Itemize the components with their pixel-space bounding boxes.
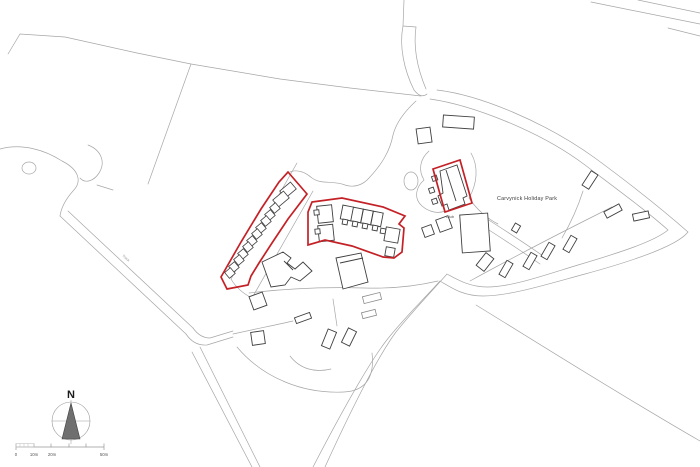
sweep-road-inner: [325, 99, 668, 467]
cottage-tab: [352, 221, 358, 227]
yard-divider: [333, 299, 337, 326]
club-green: [404, 172, 418, 190]
ne-corner-road-a: [591, 2, 700, 24]
caravan: [321, 329, 336, 349]
sweep-road-outer: [313, 90, 688, 467]
outbuilding-sq: [251, 331, 266, 346]
club-label: Club: [446, 214, 455, 219]
caravan: [563, 235, 577, 252]
outbuilding: [361, 309, 376, 318]
park-west-boundary: [290, 101, 416, 186]
north-arrow: N: [52, 389, 90, 444]
track-south-b: [192, 352, 252, 467]
south-loop-a: [237, 347, 372, 392]
hedge-curve: [80, 145, 102, 181]
site-plan-canvas: Carvynick Holiday Park Club Track N 0 10…: [0, 0, 700, 467]
cottage-se: [385, 247, 395, 257]
barn-east: [336, 253, 368, 289]
track-south-a: [200, 347, 260, 467]
club-porch: [428, 187, 434, 193]
ne-corner-road-b: [638, 0, 700, 13]
site-plan-svg: Carvynick Holiday Park Club Track N 0 10…: [0, 0, 700, 467]
caravan: [632, 211, 649, 221]
club-porch: [431, 198, 437, 204]
se-field-boundary: [476, 305, 700, 441]
cottage-tab: [314, 210, 319, 215]
parcel-lines: [0, 0, 700, 467]
north-lane-a: [402, 26, 414, 90]
cottage-tab: [315, 229, 320, 234]
map-labels: Carvynick Holiday Park Club Track: [121, 196, 557, 263]
cottage-east: [384, 227, 400, 243]
caravan: [541, 242, 555, 259]
cottage-units: [314, 205, 400, 257]
caravan: [582, 171, 598, 190]
ne-corner-road-c: [668, 28, 700, 36]
shed: [422, 225, 435, 238]
scale-bar: 0 10m 20m 50m: [15, 444, 109, 458]
west-road-bend-b: [193, 328, 233, 338]
cottage-tab: [342, 219, 348, 225]
scale-label-0: 0: [15, 452, 18, 457]
buildings: [249, 115, 650, 349]
cottage-tab: [380, 228, 386, 234]
west-road-side-a: [60, 216, 186, 334]
light-buildings: [361, 292, 381, 318]
outbuilding: [362, 292, 381, 303]
north-building: [443, 115, 475, 129]
south-loop-b: [290, 356, 331, 370]
outbuilding-thin: [294, 312, 311, 323]
scale-hatch-block: [16, 444, 34, 448]
caravan: [523, 252, 537, 269]
north-label: N: [67, 389, 75, 401]
track-label: Track: [121, 254, 130, 263]
pond: [22, 162, 36, 174]
scale-label-50m: 50m: [100, 452, 109, 457]
workshop-building: [460, 213, 491, 253]
caravan: [604, 204, 622, 218]
caravan: [341, 328, 356, 346]
cottage-tab: [372, 225, 378, 231]
hedge-tick: [97, 185, 113, 190]
caravan-small: [511, 223, 520, 233]
west-road-bend-a: [186, 334, 233, 345]
caravan: [499, 260, 513, 277]
field-divider: [148, 64, 191, 184]
scale-label-20m: 20m: [48, 452, 57, 457]
north-small-building: [416, 127, 432, 144]
cottage-row: [371, 211, 383, 227]
scale-label-10m: 10m: [30, 452, 39, 457]
park-name-label: Carvynick Holiday Park: [497, 196, 557, 202]
lane-cap: [414, 90, 427, 96]
farmhouse-cluster: [262, 252, 312, 287]
north-lane-b: [415, 27, 426, 89]
north-lane-top: [403, 0, 416, 27]
pond-curve: [0, 147, 78, 216]
caravan-row-line: [470, 207, 612, 281]
west-road-side-b: [68, 211, 193, 328]
outbuilding-sq: [249, 292, 267, 310]
caravan: [476, 253, 494, 272]
cottage-tab: [362, 223, 368, 229]
field-boundary-north: [8, 34, 421, 96]
